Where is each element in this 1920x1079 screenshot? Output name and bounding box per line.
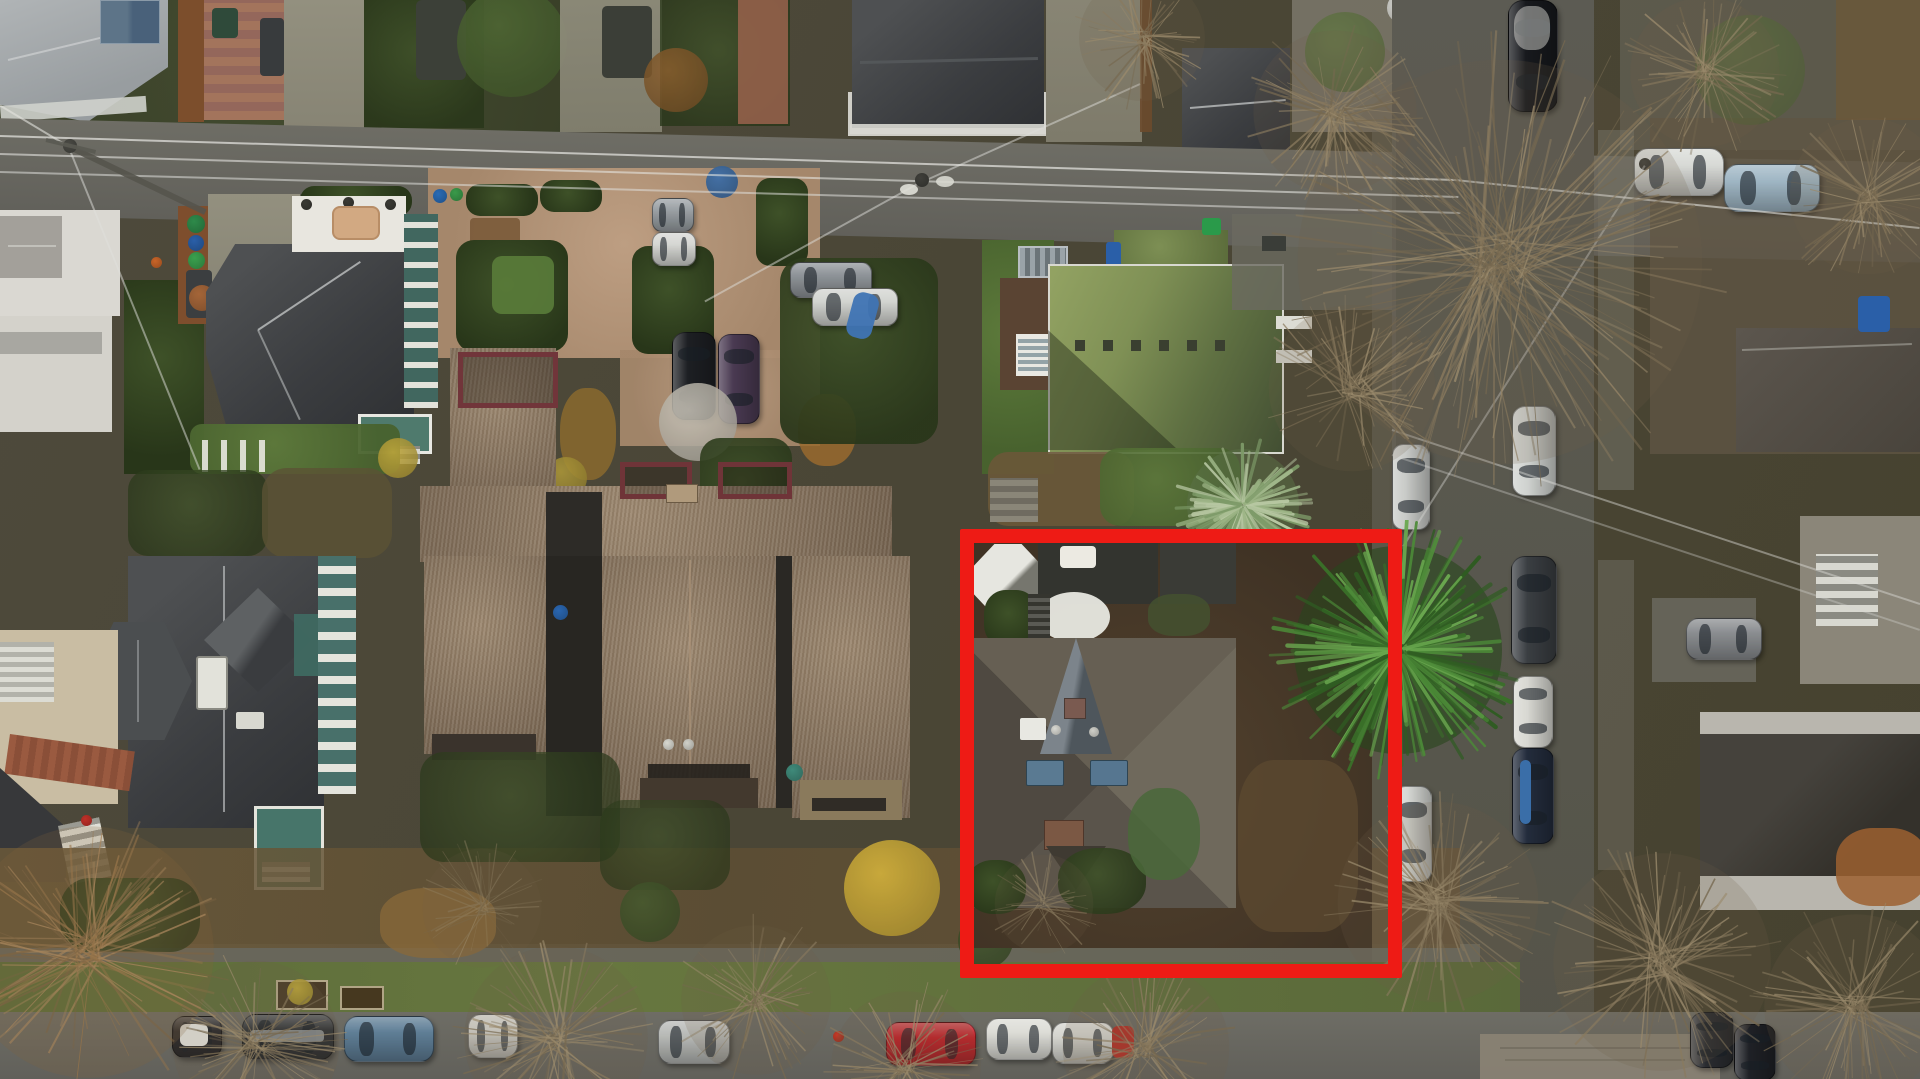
vict-skylight-2 (236, 712, 264, 729)
tree-top-c (1068, 0, 1216, 112)
teal-east-wall (404, 214, 438, 408)
car-b3-glass-front (359, 1022, 374, 1055)
aerial-photo: Aerial drone photo of a residential bloc… (0, 0, 1920, 1079)
car-b7-glass-rear (1029, 1025, 1039, 1054)
stone-planters (990, 478, 1038, 522)
mossy-vents (1075, 340, 1237, 351)
vict-deck-striped (0, 642, 54, 702)
maroon-porch-2 (718, 462, 792, 499)
dark-roof-house-top (852, 0, 1044, 128)
east-yards-2 (1836, 0, 1920, 120)
hedge-road-2 (466, 184, 538, 216)
lamp-1 (900, 184, 918, 195)
br-orange-foliage (1836, 828, 1920, 906)
vent-white-2 (683, 739, 694, 750)
car-b7-glass-front (997, 1024, 1008, 1054)
car-court-purple-glass-front (724, 349, 754, 364)
tree-bl-2 (158, 946, 354, 1079)
complex-chimney (666, 484, 698, 503)
complex-wing-se (792, 556, 910, 818)
car-b3 (344, 1016, 434, 1062)
bin-cluster-3 (602, 6, 652, 78)
vent-white-1 (663, 739, 674, 750)
white-house-a-roof (0, 216, 62, 278)
garden-mid-left-2 (262, 468, 392, 558)
fence-top-left (178, 0, 204, 122)
car-court-silver-glass-rear (679, 203, 685, 226)
tree-tr-1 (1239, 16, 1431, 208)
complex-wing-sw (424, 556, 546, 754)
bin-green-moss (1202, 218, 1221, 235)
car-court-black-glass-front (678, 347, 710, 362)
gray-house-steps (1816, 554, 1878, 626)
car-drive-silver-glass-front (804, 267, 818, 293)
car-court-silver-glass-front (659, 203, 666, 227)
complex-court-nw (458, 352, 558, 408)
car-court-white-glass-front (660, 237, 667, 261)
bin-blue-court (433, 189, 447, 203)
grass-island (492, 256, 554, 314)
teal-roof-main (206, 244, 414, 428)
white-house-b-band (0, 332, 102, 354)
vict-east-facade (318, 556, 356, 794)
car-court-white (652, 232, 696, 266)
teal-bin-se (786, 764, 803, 781)
car-r2-glass-rear (1398, 500, 1424, 513)
pergola (202, 440, 276, 472)
highlight-rectangle (960, 529, 1402, 978)
driveway-top (284, 0, 364, 130)
tree-bc-3 (818, 978, 994, 1079)
bin-cluster-2 (260, 18, 284, 76)
car-driveway-gray-glass-front (1699, 624, 1712, 654)
pole-top-2 (915, 173, 929, 187)
yellow-flowers-1 (378, 438, 418, 478)
car-drive-white-glass-front (826, 293, 840, 320)
lamp-2 (936, 176, 954, 187)
car-b7 (986, 1018, 1052, 1060)
garden-complex-s-2 (600, 800, 730, 890)
bin-green-l2 (188, 252, 205, 269)
bin-green-l1 (187, 215, 205, 233)
car-driveway-gray (1686, 618, 1762, 660)
right-sidewalk-2 (1598, 560, 1634, 870)
hot-tub (332, 206, 380, 240)
vict-teal-sliver (294, 614, 320, 676)
dark-roof-trim (850, 124, 1046, 134)
bins-blue-r (1858, 296, 1890, 332)
complex-windows-c (648, 764, 750, 778)
complex-flat-1 (546, 492, 602, 558)
hedge-road-3 (540, 180, 602, 212)
vict-turret-ridge (137, 640, 139, 722)
tree-ne-1 (1254, 290, 1450, 486)
hedge-court-right (756, 178, 808, 266)
wha-ridge (8, 245, 56, 247)
brick-path-top (738, 0, 788, 124)
car-court-silver (652, 198, 694, 232)
car-tr-2-glass-front (1740, 171, 1756, 206)
garden-mid-left-1 (128, 470, 268, 556)
car-b3-glass-rear (403, 1023, 416, 1055)
deck-vent-3 (385, 199, 396, 210)
vict-skylight-1 (196, 656, 228, 710)
deck-vent-1 (301, 199, 312, 210)
roof-solar-panels (100, 0, 160, 44)
yellow-tree (844, 840, 940, 936)
complex-windows-se (812, 798, 886, 811)
tree-r-s3 (1748, 898, 1920, 1079)
bin-cluster-1 (212, 8, 238, 38)
bin-blue-alley (553, 605, 568, 620)
car-court-white-glass-rear (681, 237, 687, 260)
car-driveway-gray-glass-rear (1736, 625, 1747, 654)
shrub-leafband (412, 838, 552, 978)
bin-blue-l1 (188, 235, 204, 251)
autumn-tree-top-2 (644, 48, 708, 112)
tree-tr-2 (1617, 0, 1793, 160)
bin-green-court (450, 188, 463, 201)
tree-tr-3 (1776, 104, 1920, 288)
basketball (151, 257, 162, 268)
